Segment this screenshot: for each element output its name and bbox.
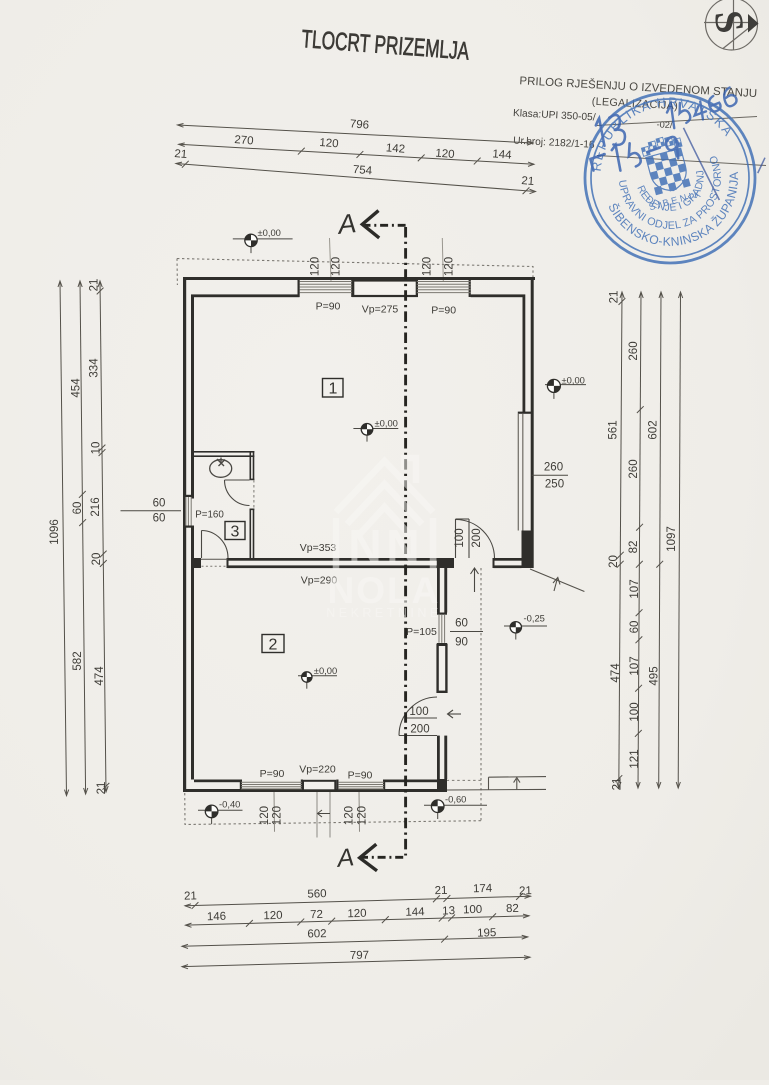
svg-text:2: 2 [269,637,278,654]
svg-text:334: 334 [89,358,101,378]
svg-text:N: N [386,520,419,572]
svg-text:P=90: P=90 [431,305,456,317]
svg-text:-0,60: -0,60 [445,794,466,805]
svg-text:N: N [348,520,381,572]
svg-text:-0,40: -0,40 [219,799,240,810]
svg-text:797: 797 [350,950,369,962]
svg-text:P=160: P=160 [195,510,224,521]
svg-text:260: 260 [544,462,563,474]
svg-text:100: 100 [409,706,428,718]
svg-text:260: 260 [628,341,640,360]
svg-text:582: 582 [72,651,84,670]
svg-text:Vp=353: Vp=353 [300,542,337,554]
svg-text:21: 21 [184,890,197,902]
svg-text:270: 270 [234,134,254,147]
svg-text:1097: 1097 [666,526,678,552]
svg-text:195: 195 [477,927,496,939]
svg-text:474: 474 [94,666,106,686]
svg-text:82: 82 [628,541,640,554]
svg-text:21: 21 [609,291,621,304]
svg-text:146: 146 [207,911,226,923]
svg-text:120: 120 [344,806,356,825]
svg-text:120: 120 [422,257,434,276]
svg-text:60: 60 [629,621,641,634]
svg-text:72: 72 [310,909,323,921]
svg-text:P=105: P=105 [406,626,437,638]
svg-text:174: 174 [473,883,493,896]
svg-text:602: 602 [648,420,660,439]
svg-text:200: 200 [410,724,429,736]
svg-text:120: 120 [357,806,369,825]
svg-text:260: 260 [628,459,640,478]
svg-text:474: 474 [610,663,622,683]
svg-text:P=90: P=90 [316,301,341,313]
svg-text:142: 142 [385,142,405,155]
svg-text:NEKRETNINE: NEKRETNINE [326,606,442,620]
svg-text:NOLA: NOLA [328,570,441,611]
svg-text:10: 10 [91,442,103,455]
svg-text:144: 144 [405,906,425,919]
svg-text:P=90: P=90 [348,770,373,782]
svg-text:120: 120 [347,908,366,920]
svg-text:216: 216 [90,497,102,516]
svg-text:454: 454 [71,378,83,398]
svg-text:Vp=275: Vp=275 [362,304,399,316]
svg-text:754: 754 [352,164,373,178]
svg-text:20: 20 [608,555,620,568]
svg-text:602: 602 [307,928,326,940]
svg-text:60: 60 [72,502,84,515]
svg-text:±0,00: ±0,00 [375,418,398,429]
svg-text:1096: 1096 [49,519,61,545]
svg-text:120: 120 [310,257,322,276]
svg-text:60: 60 [455,618,468,630]
svg-text:20: 20 [91,553,103,566]
svg-text:21: 21 [174,148,188,161]
svg-text:21: 21 [96,782,108,795]
svg-text:561: 561 [608,420,620,439]
svg-text:120: 120 [330,257,342,276]
svg-text:144: 144 [492,148,513,162]
svg-text:120: 120 [272,806,284,825]
svg-text:495: 495 [649,666,661,685]
svg-text:60: 60 [153,513,166,525]
svg-text:82: 82 [506,903,519,915]
svg-text:100: 100 [454,528,466,547]
svg-text:120: 120 [263,910,282,922]
svg-text:3: 3 [231,524,240,541]
svg-text:107: 107 [629,579,641,598]
svg-text:±0,00: ±0,00 [258,227,281,238]
svg-text:120: 120 [259,806,271,825]
svg-text:560: 560 [307,888,326,900]
svg-text:±0,00: ±0,00 [314,665,337,676]
svg-text:21: 21 [521,175,535,188]
svg-text:121: 121 [629,749,641,768]
svg-text:60: 60 [153,498,166,510]
svg-text:13: 13 [442,905,455,917]
svg-text:21: 21 [612,778,624,791]
svg-text:±0,00: ±0,00 [562,375,585,386]
svg-text:250: 250 [545,479,564,491]
svg-text:90: 90 [455,637,468,649]
svg-text:200: 200 [471,528,483,547]
svg-text:21: 21 [89,279,101,292]
svg-text:100: 100 [629,702,641,721]
svg-text:107: 107 [629,656,641,675]
svg-text:120: 120 [319,137,339,150]
svg-text:P=90: P=90 [260,768,285,780]
svg-text:21: 21 [434,885,447,897]
svg-text:-0,25: -0,25 [524,613,545,624]
svg-text:Vp=220: Vp=220 [299,764,336,776]
svg-text:120: 120 [444,257,456,276]
svg-text:100: 100 [463,904,482,916]
svg-text:21: 21 [519,885,532,897]
svg-text:796: 796 [349,118,369,131]
svg-text:120: 120 [435,148,455,161]
svg-text:1: 1 [329,381,338,398]
